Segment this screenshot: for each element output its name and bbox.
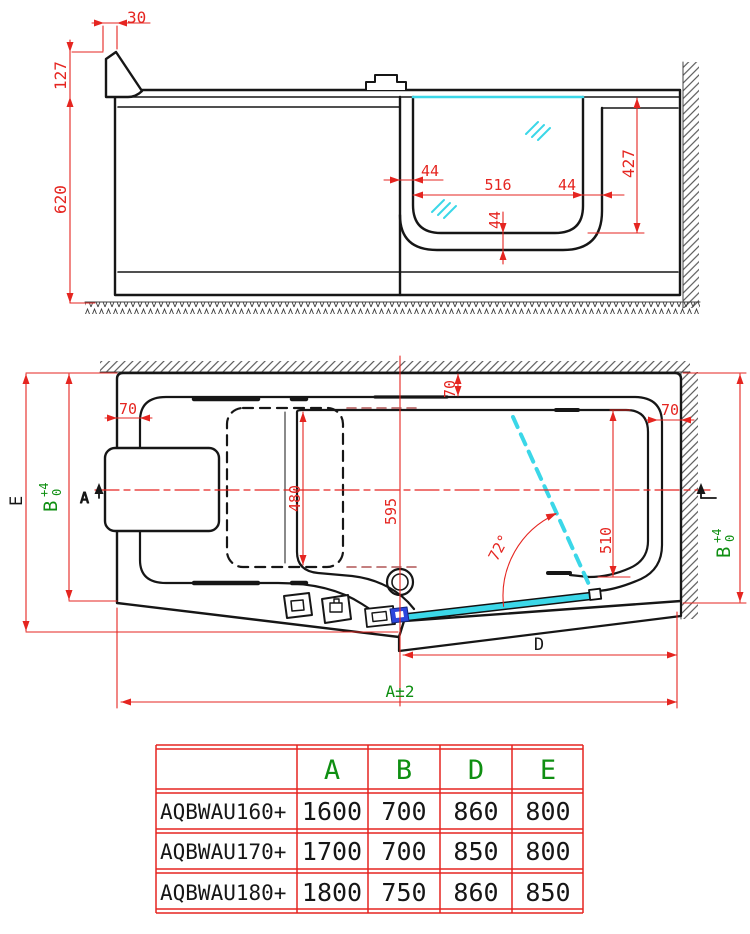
right-wall-hatch (683, 62, 699, 308)
model-name: AQBWAU160+ (160, 800, 286, 824)
dim-70-top-label: 70 (441, 380, 459, 398)
value-d: 850 (453, 837, 498, 866)
dim-595-label: 595 (382, 498, 400, 525)
dim-b-zero: 0 (723, 535, 737, 542)
value-d: 860 (453, 878, 498, 907)
door-hinge (589, 589, 601, 600)
dim-b-plus: +4 (37, 483, 51, 497)
dim-44-left-label: 44 (421, 162, 439, 180)
table-header-a: A (324, 755, 340, 786)
table-header-d: D (468, 755, 484, 786)
floor-hatch (85, 302, 700, 314)
value-a: 1600 (302, 797, 362, 826)
value-b: 750 (381, 878, 426, 907)
section-marker-a-label: A (80, 489, 89, 507)
bathtub-technical-drawing: 30 127 620 44 516 44 44 427 (0, 0, 750, 934)
headrest-plan (105, 448, 219, 531)
jet-button (284, 593, 312, 618)
dim-b-letter: B (713, 547, 735, 558)
dim-b-plus: +4 (710, 529, 724, 543)
model-name: AQBWAU180+ (160, 881, 286, 905)
value-e: 850 (525, 878, 570, 907)
dim-44-right-label: 44 (558, 176, 576, 194)
value-b: 700 (381, 837, 426, 866)
top-wall-hatch (100, 361, 690, 372)
dim-516-label: 516 (484, 176, 511, 194)
dim-620-label: 620 (51, 185, 70, 214)
dim-427-label: 427 (619, 149, 638, 178)
technical-drawing-page: 30 127 620 44 516 44 44 427 (0, 0, 750, 934)
dim-d-label: D (534, 635, 544, 655)
table-header-b: B (396, 755, 412, 786)
value-d: 860 (453, 797, 498, 826)
dim-480-label: 480 (286, 485, 304, 512)
dim-e-label: E (7, 496, 27, 506)
dim-127-label: 127 (51, 61, 70, 90)
dim-a-label: A±2 (386, 682, 415, 701)
dim-70-right-label: 70 (661, 401, 679, 419)
dim-30-label: 30 (127, 8, 146, 27)
right-wall-hatch-plan (681, 372, 698, 619)
dim-510-label: 510 (597, 527, 615, 554)
dim-44-bottom-label: 44 (486, 211, 504, 229)
value-e: 800 (525, 837, 570, 866)
value-a: 1800 (302, 878, 362, 907)
table-header-e: E (540, 755, 556, 786)
dim-70-left-label: 70 (119, 400, 137, 418)
value-a: 1700 (302, 837, 362, 866)
dim-b-letter: B (40, 501, 62, 512)
model-name: AQBWAU170+ (160, 840, 286, 864)
dim-b-zero: 0 (50, 489, 64, 496)
value-b: 700 (381, 797, 426, 826)
value-e: 800 (525, 797, 570, 826)
